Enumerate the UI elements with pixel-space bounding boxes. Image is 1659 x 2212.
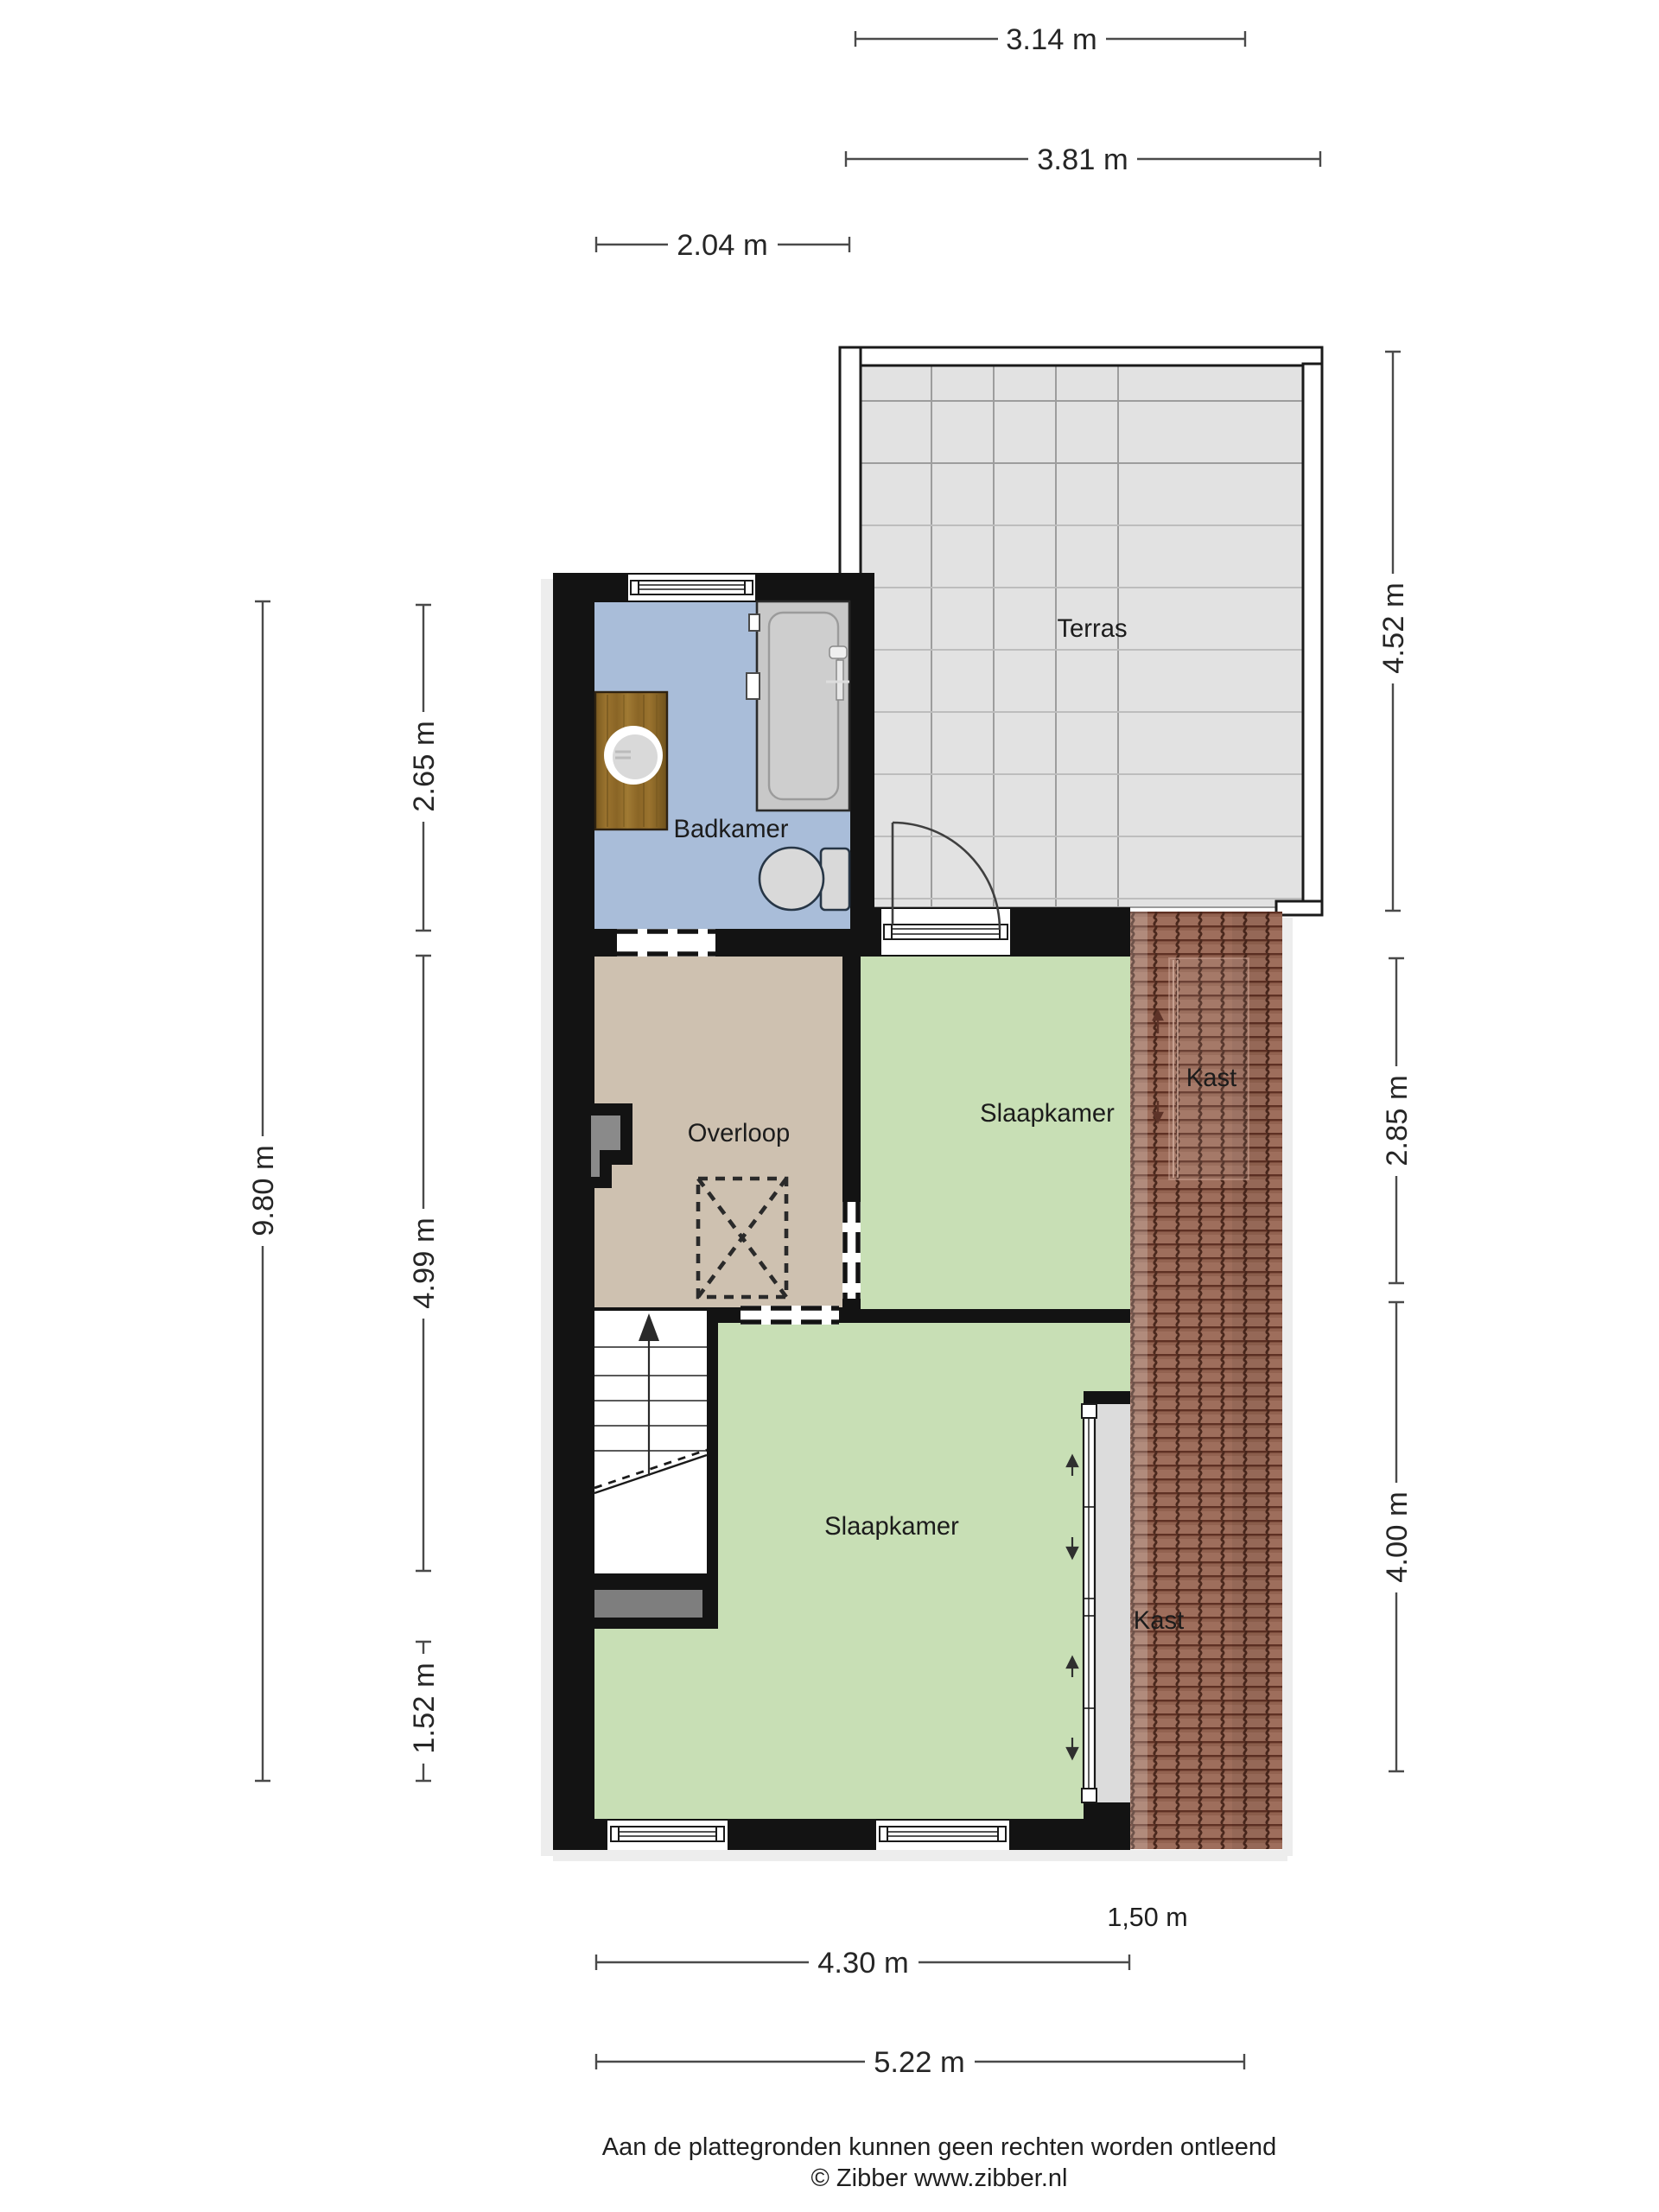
svg-text:Slaapkamer: Slaapkamer [980,1100,1115,1128]
svg-text:Aan de plattegronden kunnen ge: Aan de plattegronden kunnen geen rechten… [602,2133,1276,2161]
svg-text:Overloop: Overloop [688,1120,790,1147]
svg-text:5.22 m: 5.22 m [874,2046,964,2079]
svg-text:4.52 m: 4.52 m [1377,582,1410,673]
svg-text:Badkamer: Badkamer [673,816,788,843]
svg-text:4.99 m: 4.99 m [408,1217,441,1308]
svg-text:9.80 m: 9.80 m [247,1145,280,1236]
svg-text:3.81 m: 3.81 m [1037,143,1128,176]
svg-text:3.14 m: 3.14 m [1006,23,1096,56]
svg-text:Terras: Terras [1057,615,1127,643]
svg-text:© Zibber www.zibber.nl: © Zibber www.zibber.nl [811,2164,1068,2192]
svg-text:Kast: Kast [1134,1607,1184,1635]
svg-text:2.85 m: 2.85 m [1381,1075,1414,1166]
svg-text:Kast: Kast [1186,1065,1236,1092]
svg-text:4.30 m: 4.30 m [817,1947,908,1980]
svg-text:1.52 m: 1.52 m [408,1662,441,1753]
svg-text:2.65 m: 2.65 m [408,721,441,811]
svg-text:2.04 m: 2.04 m [677,229,767,262]
svg-text:1,50 m: 1,50 m [1107,1903,1187,1932]
svg-text:Slaapkamer: Slaapkamer [824,1513,959,1541]
svg-text:4.00 m: 4.00 m [1381,1491,1414,1582]
